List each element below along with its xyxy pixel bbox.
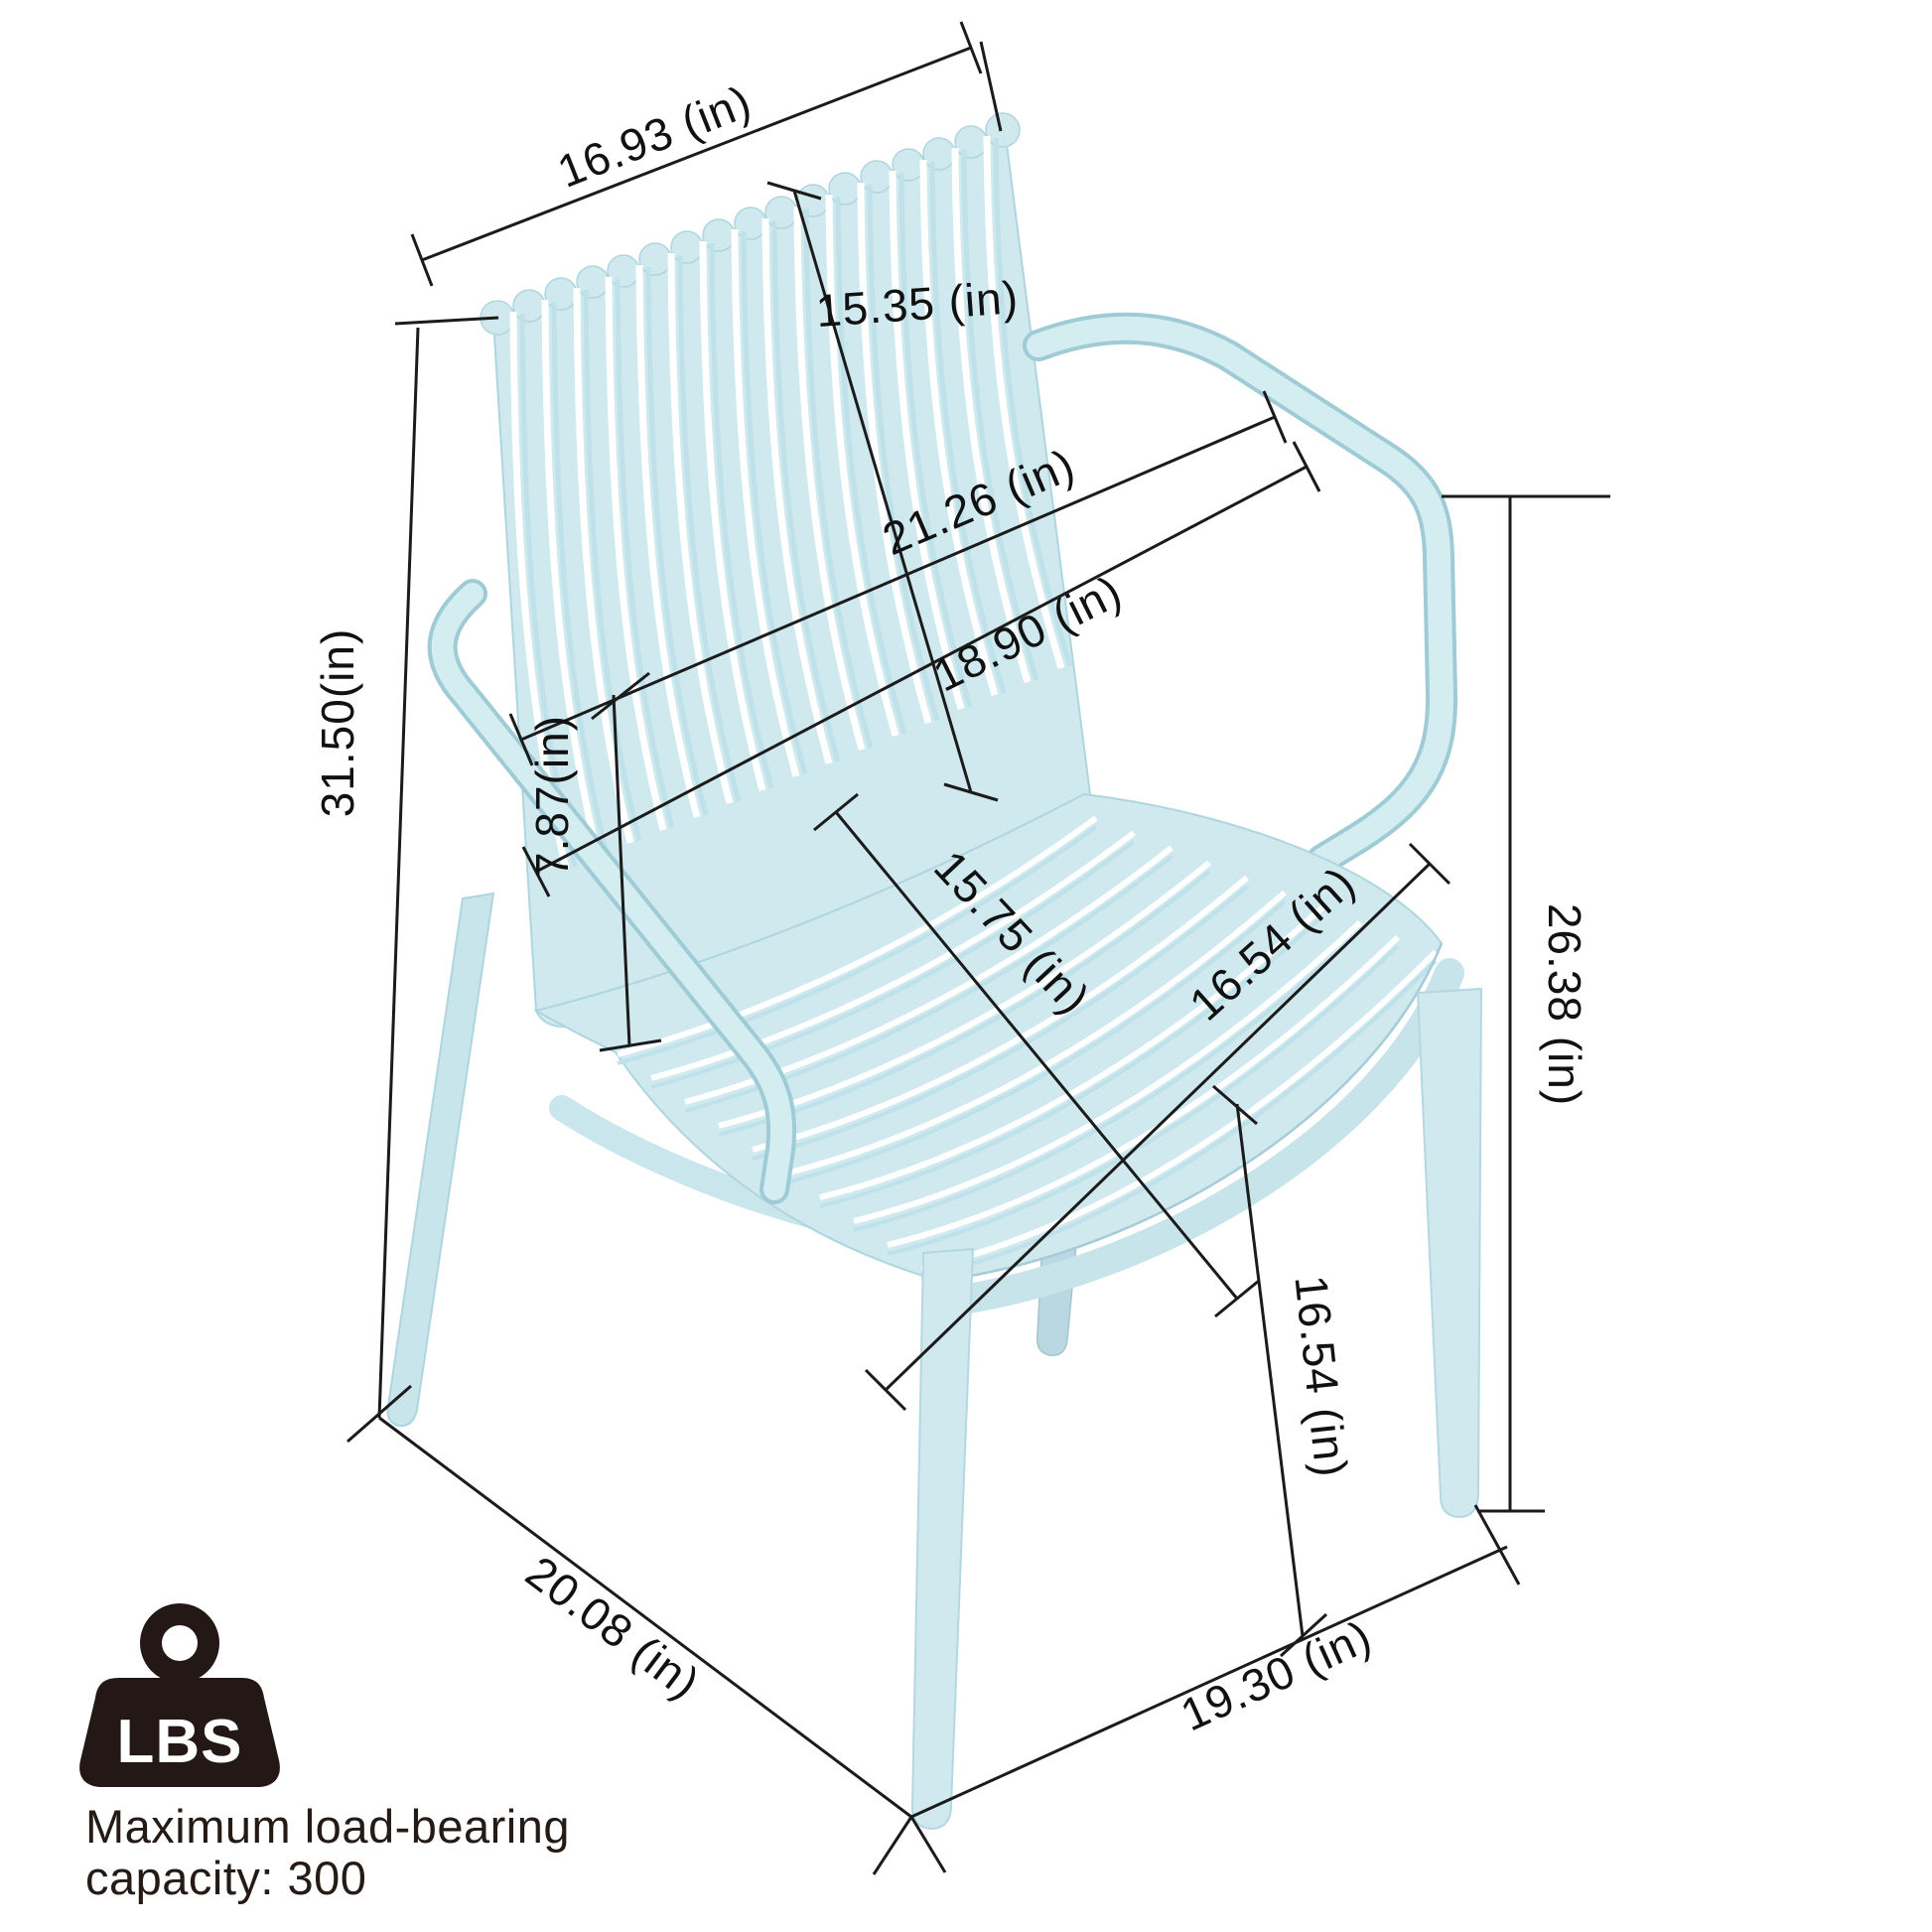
chair-front-right-leg xyxy=(1418,989,1481,1517)
product-dimension-diagram: 16.93 (in) 15.35 (in) 21.26 (in) 18.90 (… xyxy=(0,0,1932,1932)
load-capacity-badge: LBS Maximum load-bearing capacity: 300 xyxy=(79,1603,570,1904)
dim-back-width-label: 16.93 (in) xyxy=(551,74,759,197)
dim-overall-height-label: 31.50(in) xyxy=(312,628,363,818)
dim-overall-depth-label: 20.08 (in) xyxy=(516,1546,709,1710)
load-capacity-line2: capacity: 300 xyxy=(85,1852,366,1904)
dim-overall-width-line xyxy=(911,1505,1519,1817)
load-capacity-line1: Maximum load-bearing xyxy=(85,1800,570,1853)
lbs-icon-label: LBS xyxy=(117,1708,243,1776)
dim-floor-to-armrest-label: 26.38 (in) xyxy=(1539,903,1590,1106)
dim-seat-height-label: 16.54 (in) xyxy=(1285,1273,1357,1480)
dim-overall-width-label: 19.30 (in) xyxy=(1173,1609,1380,1740)
lbs-weight-icon: LBS xyxy=(79,1603,280,1787)
chair-back-left-leg xyxy=(387,894,493,1426)
dim-armrest-to-seat-label: 7.87(in) xyxy=(526,715,578,878)
chair-dimension-illustration: 16.93 (in) 15.35 (in) 21.26 (in) 18.90 (… xyxy=(0,0,1932,1932)
